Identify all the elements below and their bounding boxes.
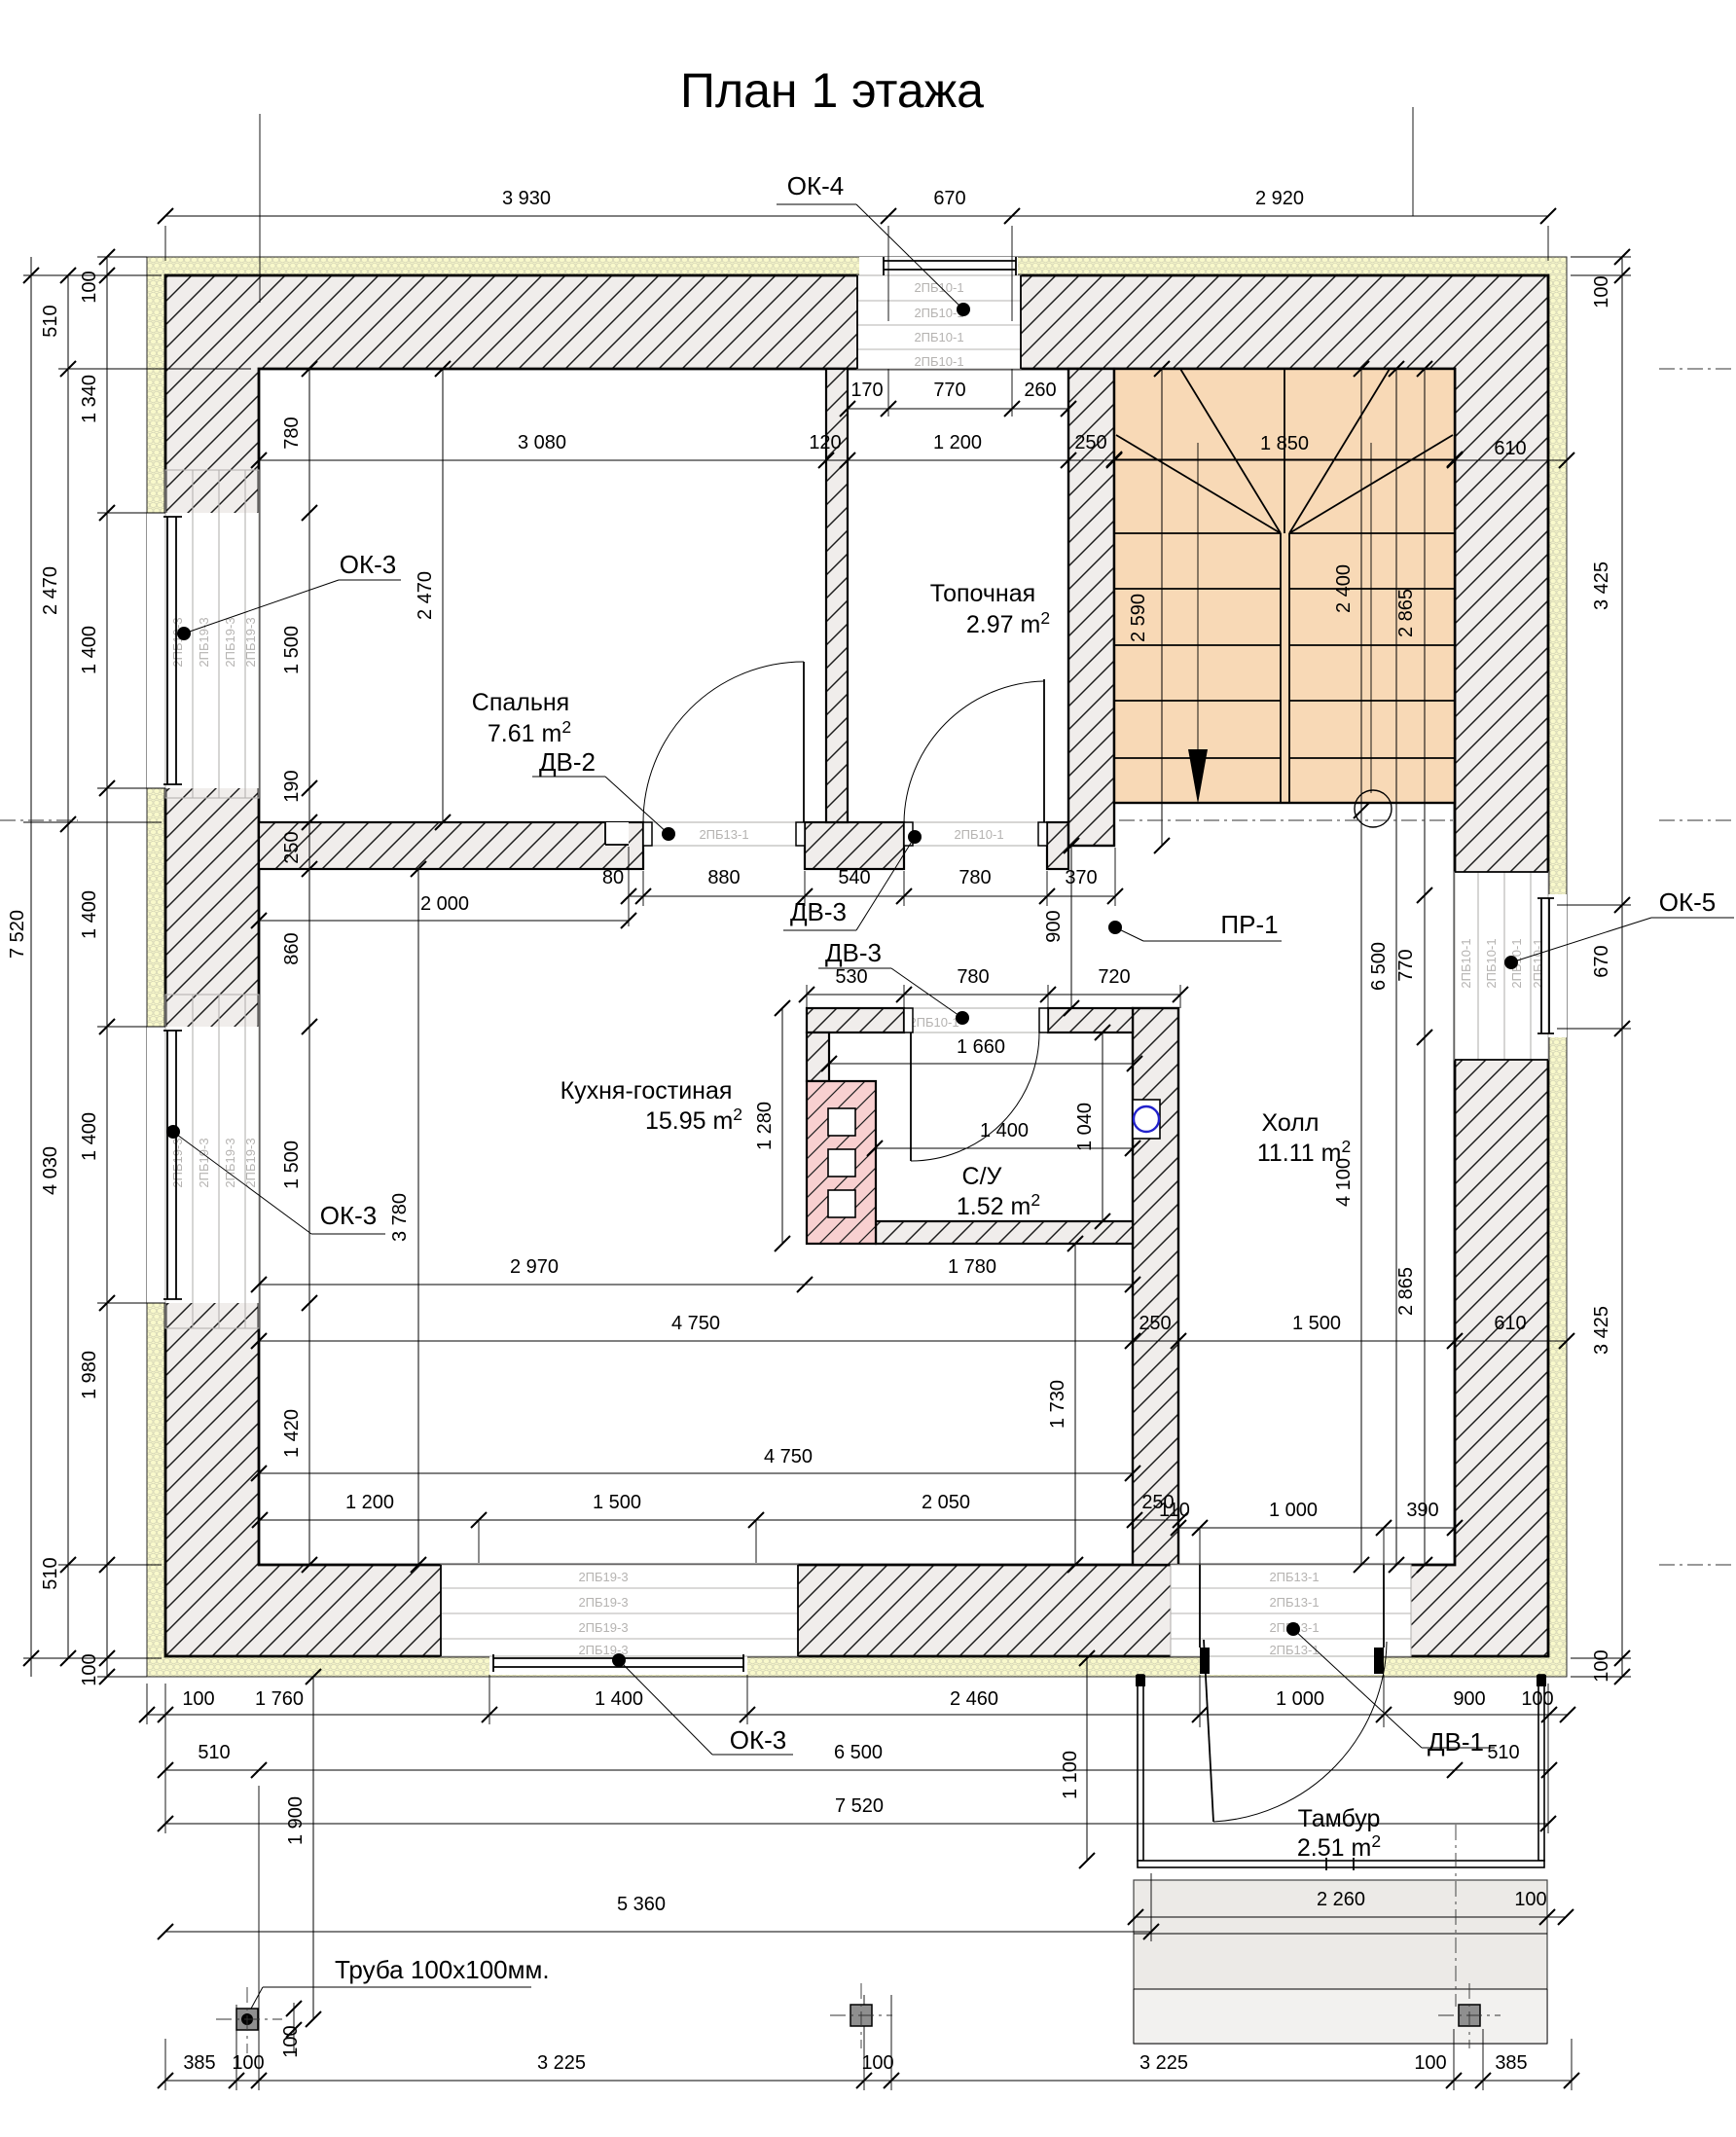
svg-text:ОК-5: ОК-5 (1659, 887, 1717, 917)
svg-text:2 590: 2 590 (1128, 594, 1149, 642)
svg-text:1 000: 1 000 (1269, 1500, 1318, 1521)
svg-text:ДВ-1: ДВ-1 (1428, 1727, 1484, 1757)
svg-text:530: 530 (835, 966, 867, 988)
svg-text:4 750: 4 750 (671, 1313, 720, 1334)
svg-text:План 1 этажа: План 1 этажа (680, 63, 984, 118)
svg-text:Топочная: Топочная (930, 580, 1035, 607)
svg-text:Холл: Холл (1262, 1109, 1320, 1137)
svg-text:ДВ-3: ДВ-3 (825, 938, 882, 967)
svg-text:С/У: С/У (962, 1163, 1002, 1190)
svg-text:15.95 m2: 15.95 m2 (645, 1105, 742, 1135)
svg-text:1 400: 1 400 (79, 626, 100, 674)
svg-text:2ПБ19-3: 2ПБ19-3 (223, 617, 237, 667)
svg-text:2ПБ10-1: 2ПБ10-1 (909, 1015, 958, 1030)
svg-text:3 780: 3 780 (389, 1193, 411, 1242)
svg-text:2ПБ19-3: 2ПБ19-3 (578, 1620, 628, 1635)
svg-text:170: 170 (850, 380, 883, 401)
svg-text:1 780: 1 780 (948, 1256, 996, 1278)
svg-text:100: 100 (1591, 275, 1612, 308)
svg-text:2ПБ13-1: 2ПБ13-1 (699, 827, 748, 842)
svg-text:4 030: 4 030 (40, 1146, 61, 1195)
svg-text:2 260: 2 260 (1317, 1889, 1365, 1910)
svg-text:1 100: 1 100 (1060, 1751, 1081, 1799)
svg-text:7 520: 7 520 (835, 1795, 884, 1817)
svg-text:1 760: 1 760 (255, 1688, 304, 1710)
svg-text:2.97 m2: 2.97 m2 (966, 608, 1050, 638)
svg-text:2ПБ10-1: 2ПБ10-1 (1484, 938, 1499, 988)
svg-text:5 360: 5 360 (617, 1894, 666, 1915)
svg-text:1 850: 1 850 (1260, 433, 1309, 454)
svg-text:100: 100 (1521, 1688, 1553, 1710)
svg-text:2ПБ19-3: 2ПБ19-3 (223, 1138, 237, 1187)
svg-text:1 420: 1 420 (281, 1409, 303, 1458)
svg-text:780: 780 (281, 417, 303, 449)
svg-text:2ПБ19-3: 2ПБ19-3 (243, 617, 258, 667)
svg-text:2.51 m2: 2.51 m2 (1297, 1831, 1381, 1862)
svg-text:11.11 m2: 11.11 m2 (1257, 1137, 1351, 1167)
svg-text:510: 510 (198, 1742, 230, 1763)
svg-text:2ПБ10-1: 2ПБ10-1 (914, 330, 963, 344)
svg-text:1 660: 1 660 (957, 1036, 1005, 1058)
svg-text:2ПБ10-1: 2ПБ10-1 (1531, 938, 1545, 988)
svg-text:2ПБ13-1: 2ПБ13-1 (1269, 1643, 1319, 1657)
svg-text:385: 385 (1495, 2052, 1527, 2074)
svg-text:1 500: 1 500 (593, 1492, 641, 1513)
svg-text:780: 780 (957, 966, 989, 988)
svg-text:720: 720 (1098, 966, 1130, 988)
svg-text:2ПБ13-1: 2ПБ13-1 (1269, 1595, 1319, 1610)
svg-text:3 425: 3 425 (1591, 1306, 1612, 1355)
svg-text:1 200: 1 200 (345, 1492, 394, 1513)
svg-text:6 500: 6 500 (1368, 942, 1390, 991)
svg-text:390: 390 (1406, 1500, 1438, 1521)
svg-text:120: 120 (809, 432, 841, 453)
svg-text:770: 770 (1395, 949, 1417, 981)
svg-text:1 400: 1 400 (980, 1120, 1029, 1141)
svg-text:1 040: 1 040 (1074, 1103, 1096, 1151)
svg-text:3 225: 3 225 (537, 2052, 586, 2074)
svg-text:ОК-4: ОК-4 (787, 171, 845, 200)
svg-text:ОК-3: ОК-3 (340, 550, 397, 579)
svg-text:510: 510 (1487, 1742, 1519, 1763)
svg-text:2ПБ19-3: 2ПБ19-3 (578, 1570, 628, 1584)
svg-text:250: 250 (1074, 432, 1106, 453)
svg-text:2ПБ10-1: 2ПБ10-1 (954, 827, 1003, 842)
svg-text:2 000: 2 000 (420, 893, 469, 915)
svg-text:100: 100 (1414, 2052, 1446, 2074)
svg-text:860: 860 (281, 932, 303, 964)
svg-text:900: 900 (1043, 910, 1065, 942)
svg-text:7.61 m2: 7.61 m2 (488, 717, 571, 747)
svg-text:2 865: 2 865 (1395, 1267, 1417, 1316)
svg-text:2ПБ19-3: 2ПБ19-3 (578, 1595, 628, 1610)
svg-text:2 920: 2 920 (1255, 188, 1304, 209)
svg-text:190: 190 (281, 770, 303, 802)
svg-text:250: 250 (281, 831, 303, 863)
svg-text:3 225: 3 225 (1139, 2052, 1188, 2074)
svg-text:1 500: 1 500 (281, 1141, 303, 1189)
svg-text:880: 880 (707, 867, 740, 888)
svg-text:540: 540 (838, 867, 870, 888)
svg-text:2 460: 2 460 (950, 1688, 998, 1710)
svg-text:1 400: 1 400 (79, 890, 100, 939)
svg-text:1 200: 1 200 (933, 432, 982, 453)
svg-text:670: 670 (1591, 945, 1612, 977)
svg-text:1 730: 1 730 (1047, 1380, 1068, 1429)
svg-text:610: 610 (1494, 438, 1526, 459)
svg-text:110: 110 (1159, 1500, 1190, 1521)
svg-text:3 425: 3 425 (1591, 561, 1612, 610)
svg-text:2 470: 2 470 (40, 566, 61, 615)
svg-text:Кухня-гостиная: Кухня-гостиная (561, 1077, 733, 1105)
svg-text:100: 100 (1514, 1889, 1546, 1910)
svg-text:370: 370 (1065, 867, 1097, 888)
svg-text:100: 100 (280, 2025, 302, 2057)
svg-text:2ПБ19-3: 2ПБ19-3 (170, 1138, 185, 1187)
svg-text:2ПБ10-1: 2ПБ10-1 (914, 306, 963, 320)
svg-text:4 750: 4 750 (764, 1446, 813, 1467)
svg-text:1 900: 1 900 (285, 1796, 307, 1845)
svg-text:Труба 100х100мм.: Труба 100х100мм. (335, 1955, 550, 1984)
svg-text:260: 260 (1024, 380, 1056, 401)
svg-text:2ПБ19-3: 2ПБ19-3 (197, 1138, 211, 1187)
svg-text:2 050: 2 050 (922, 1492, 970, 1513)
svg-text:1 500: 1 500 (281, 626, 303, 674)
svg-text:510: 510 (40, 305, 61, 337)
svg-text:ДВ-3: ДВ-3 (790, 897, 847, 926)
svg-text:2 865: 2 865 (1395, 589, 1417, 637)
svg-text:2ПБ19-3: 2ПБ19-3 (170, 617, 185, 667)
svg-text:100: 100 (1591, 1649, 1612, 1682)
svg-text:Тамбур: Тамбур (1298, 1805, 1381, 1832)
svg-text:2ПБ13-1: 2ПБ13-1 (1269, 1570, 1319, 1584)
svg-text:3 930: 3 930 (502, 188, 551, 209)
svg-text:1 400: 1 400 (79, 1112, 100, 1161)
svg-text:ДВ-2: ДВ-2 (539, 747, 596, 777)
svg-text:2ПБ10-1: 2ПБ10-1 (914, 280, 963, 295)
svg-text:1 400: 1 400 (595, 1688, 643, 1710)
svg-text:1 340: 1 340 (79, 375, 100, 423)
svg-text:ПР-1: ПР-1 (1220, 910, 1278, 939)
svg-text:2ПБ19-3: 2ПБ19-3 (243, 1138, 258, 1187)
svg-text:510: 510 (40, 1557, 61, 1589)
svg-text:900: 900 (1453, 1688, 1485, 1710)
svg-text:3 080: 3 080 (518, 432, 566, 453)
svg-text:100: 100 (182, 1688, 214, 1710)
svg-text:1 980: 1 980 (79, 1351, 100, 1399)
svg-text:6 500: 6 500 (834, 1742, 883, 1763)
svg-text:1 280: 1 280 (754, 1102, 776, 1150)
svg-text:2 470: 2 470 (415, 571, 436, 620)
svg-text:2 400: 2 400 (1333, 564, 1355, 613)
svg-text:ОК-3: ОК-3 (730, 1725, 787, 1755)
svg-text:780: 780 (958, 867, 991, 888)
svg-text:610: 610 (1494, 1313, 1526, 1334)
svg-text:Спальня: Спальня (472, 689, 569, 716)
svg-text:770: 770 (933, 380, 965, 401)
svg-text:2ПБ10-1: 2ПБ10-1 (1459, 938, 1473, 988)
svg-text:385: 385 (183, 2052, 215, 2074)
svg-text:1.52 m2: 1.52 m2 (957, 1190, 1040, 1220)
svg-text:1 000: 1 000 (1276, 1688, 1324, 1710)
svg-text:7 520: 7 520 (7, 910, 28, 959)
svg-text:100: 100 (861, 2052, 893, 2074)
svg-text:250: 250 (1139, 1313, 1171, 1334)
svg-text:ОК-3: ОК-3 (320, 1201, 378, 1230)
svg-text:2ПБ10-1: 2ПБ10-1 (914, 354, 963, 369)
svg-text:1 500: 1 500 (1292, 1313, 1341, 1334)
svg-text:80: 80 (602, 867, 624, 888)
svg-text:2 970: 2 970 (510, 1256, 559, 1278)
svg-text:670: 670 (933, 188, 965, 209)
